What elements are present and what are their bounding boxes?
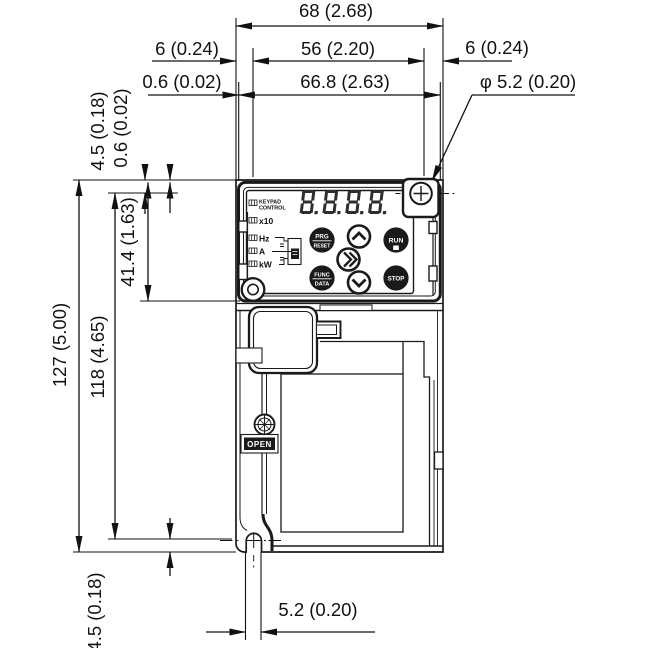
dim-hole-top-offset: 4.5 (0.18) bbox=[87, 91, 108, 170]
keypad-section: KEYPAD CONTROL x10 Hz A kW PRG RESET bbox=[239, 179, 455, 301]
dim-edge-right: 6 (0.24) bbox=[465, 37, 529, 58]
seven-seg-digit bbox=[322, 190, 343, 214]
led-label-hz: Hz bbox=[259, 234, 269, 244]
dim-hole-span-v: 118 (4.65) bbox=[87, 316, 108, 399]
led-indicators: KEYPAD CONTROL x10 Hz A kW bbox=[249, 200, 301, 270]
prg-reset-button: PRG RESET bbox=[309, 227, 334, 252]
inner-window bbox=[281, 374, 403, 532]
led-label-control: CONTROL bbox=[259, 206, 286, 212]
dim-panel-width: 66.8 (2.63) bbox=[300, 71, 389, 92]
cover-screw-icon bbox=[255, 415, 275, 435]
top-seam-notch bbox=[320, 305, 372, 311]
dim-slot-width: 5.2 (0.20) bbox=[278, 599, 357, 620]
open-label: OPEN bbox=[241, 435, 278, 454]
dim-keypad-height: 41.4 (1.63) bbox=[117, 197, 138, 286]
down-arrow-button bbox=[348, 272, 370, 294]
right-tab bbox=[435, 452, 444, 469]
svg-text:DATA: DATA bbox=[315, 282, 330, 288]
dim-panel-inset-v: 0.6 (0.02) bbox=[110, 88, 131, 167]
keypad-screw-icon bbox=[242, 278, 265, 301]
dim-edge-left: 6 (0.24) bbox=[155, 38, 219, 59]
svg-text:RESET: RESET bbox=[314, 244, 331, 250]
svg-text:OPEN: OPEN bbox=[247, 440, 272, 449]
port-cover bbox=[249, 307, 341, 373]
unit-selector-diagram bbox=[272, 238, 301, 265]
cover-seam bbox=[320, 342, 430, 547]
slot-fillet bbox=[263, 514, 272, 551]
dim-height-overall: 127 (5.00) bbox=[49, 303, 70, 387]
led-label-kw: kW bbox=[259, 260, 273, 270]
seven-seg-digit bbox=[300, 190, 321, 214]
dim-hole-bottom-offset: 4.5 (0.18) bbox=[84, 572, 105, 648]
seven-seg-digit bbox=[345, 190, 366, 214]
svg-text:PRG: PRG bbox=[315, 234, 329, 241]
svg-text:RUN: RUN bbox=[389, 238, 404, 245]
svg-text:STOP: STOP bbox=[388, 276, 405, 283]
dim-width-overall: 68 (2.68) bbox=[299, 0, 373, 21]
func-data-button: FUNC DATA bbox=[309, 265, 334, 290]
dim-hole-dia: φ 5.2 (0.20) bbox=[480, 71, 576, 92]
shift-button bbox=[338, 249, 360, 271]
dim-hole-span-h: 56 (2.20) bbox=[301, 38, 375, 59]
up-arrow-button bbox=[348, 226, 370, 248]
dim-panel-inset-h: 0.6 (0.02) bbox=[142, 71, 221, 92]
mounting-screw-icon bbox=[396, 179, 455, 217]
keypad-buttons: PRG RESET RUN FUNC DATA bbox=[309, 226, 408, 294]
seven-segment-display bbox=[300, 190, 389, 214]
led-label-a: A bbox=[259, 247, 265, 257]
seven-seg-digit bbox=[368, 190, 389, 214]
left-latch bbox=[236, 348, 262, 363]
run-button: RUN bbox=[383, 227, 408, 252]
led-label-x10: x10 bbox=[259, 216, 273, 226]
stop-button: STOP bbox=[383, 265, 408, 290]
svg-text:FUNC: FUNC bbox=[314, 273, 330, 279]
dimension-drawing: 68 (2.68) 56 (2.20) 66.8 (2.63) 6 (0.24)… bbox=[0, 0, 648, 648]
